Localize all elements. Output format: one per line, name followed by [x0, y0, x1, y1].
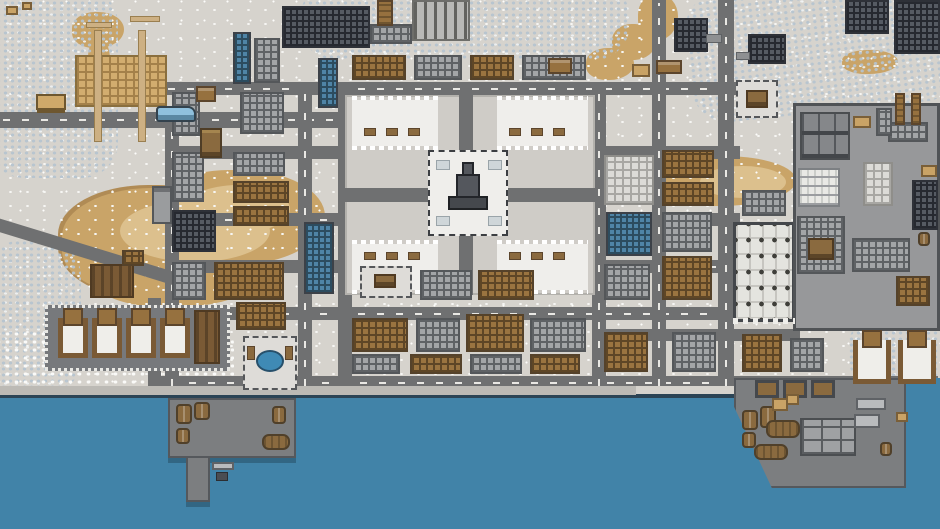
smokestack — [377, 0, 393, 26]
monument-statue[interactable] — [456, 174, 480, 198]
hotel[interactable] — [466, 314, 524, 352]
factory-chimney-a — [895, 93, 905, 125]
west-block-h[interactable] — [236, 302, 286, 330]
west-block-e[interactable] — [172, 210, 216, 252]
industrial-lower-hall[interactable] — [852, 238, 910, 272]
compound-storage[interactable] — [194, 310, 220, 364]
industrial-vat — [808, 238, 834, 260]
waterfront-east-a[interactable] — [604, 332, 648, 372]
south-row-c[interactable] — [530, 318, 586, 352]
vent-rows[interactable] — [798, 168, 840, 207]
west-block-b[interactable] — [240, 92, 284, 134]
warehouse-link-b — [736, 52, 750, 60]
harbor-cart-b — [854, 414, 880, 428]
monument-pedestal — [448, 196, 488, 210]
crate-north-a — [632, 64, 650, 77]
west-block-c[interactable] — [172, 152, 204, 202]
plaza-bench-nw-1 — [364, 128, 376, 136]
city-map — [0, 0, 940, 529]
waterfront-row-c[interactable] — [470, 354, 522, 374]
debris-b — [22, 2, 32, 10]
road-dash-line — [598, 85, 600, 386]
corner-tower-a[interactable] — [845, 0, 889, 34]
industrial-barrel — [918, 232, 930, 246]
harbor-barrel-big-a — [766, 420, 800, 438]
market-stall-4[interactable] — [160, 318, 190, 358]
plaza-bench-sw-1 — [364, 252, 376, 260]
plaza-bench-sw-2 — [386, 252, 398, 260]
office-annex[interactable] — [254, 38, 280, 83]
plaza-bench-ne-2 — [531, 128, 543, 136]
warehouse-north-a[interactable] — [674, 18, 708, 52]
west-block-g[interactable] — [214, 262, 284, 300]
shelter-north-b — [656, 60, 682, 74]
south-stall-a[interactable] — [853, 340, 891, 384]
plaza-bench-se-1 — [509, 252, 521, 260]
warehouse-north-b[interactable] — [748, 34, 786, 64]
limo[interactable] — [156, 106, 196, 122]
plaza-bench-se-3 — [553, 252, 565, 260]
plaza-road-east — [505, 188, 595, 202]
crane-arm-b — [130, 16, 160, 22]
storage-units[interactable] — [800, 112, 850, 160]
west-block-f[interactable] — [172, 262, 206, 300]
south-row-d[interactable] — [420, 270, 472, 300]
harbor-barrel-lone — [880, 442, 892, 456]
scaffold-pole-a — [94, 30, 102, 142]
industrial-east-tower[interactable] — [912, 180, 938, 230]
warehouse-link-a — [706, 34, 722, 43]
blue-tower-west[interactable] — [233, 32, 251, 84]
industrial-crates-a — [853, 116, 871, 128]
mansion[interactable] — [604, 155, 654, 205]
machine-monument — [746, 90, 768, 108]
column-hall[interactable] — [412, 0, 470, 41]
south-row-a[interactable] — [352, 318, 408, 352]
glass-tower[interactable] — [606, 212, 652, 256]
waterfront-east-d[interactable] — [790, 338, 824, 372]
industrial-crates-b — [921, 165, 937, 177]
plaza-courtyard-ne[interactable] — [497, 100, 588, 146]
cargo-box-c[interactable] — [811, 380, 835, 398]
dock-barrel-d — [272, 406, 286, 424]
pier-left[interactable] — [186, 456, 210, 502]
market-stall-3[interactable] — [126, 318, 156, 358]
barracks-row-b[interactable] — [233, 206, 289, 226]
park-bench-b — [285, 346, 293, 360]
plaza-bench-nw-2 — [386, 128, 398, 136]
plaza-bench-ne-1 — [509, 128, 521, 136]
water-tower[interactable] — [152, 186, 172, 224]
harbor-cart-a — [856, 398, 886, 410]
cemetery-wall — [733, 318, 795, 324]
plaza-bench-sw-3 — [408, 252, 420, 260]
hut[interactable] — [122, 250, 144, 266]
dock-barrel-big — [262, 434, 290, 450]
shops-row-c[interactable] — [470, 55, 514, 80]
boiler-pavilion[interactable] — [370, 24, 412, 44]
construction-building[interactable] — [75, 55, 167, 107]
shops-row-b[interactable] — [414, 55, 462, 80]
industrial-lower-annex[interactable] — [896, 276, 930, 306]
factory-chimney-b — [911, 93, 921, 125]
dock-bench — [212, 462, 234, 470]
industrial-tower[interactable] — [876, 108, 892, 136]
waterfront-row-a[interactable] — [352, 354, 400, 374]
plaza-road-west — [345, 188, 431, 202]
monument-seat-a — [436, 160, 450, 170]
waterfront-row-d[interactable] — [530, 354, 580, 374]
road-v-6 — [718, 0, 734, 389]
waterfront-east-b[interactable] — [672, 332, 716, 372]
billboard — [36, 94, 66, 110]
plaza-bench-ne-3 — [553, 128, 565, 136]
blue-twins[interactable] — [304, 222, 334, 294]
harbor-crate-b — [786, 394, 799, 405]
northeast-block[interactable] — [742, 190, 786, 216]
barn[interactable] — [90, 264, 134, 298]
pond[interactable] — [256, 350, 284, 372]
harbor-barrel-big-b — [754, 444, 788, 460]
scaffold-pole-b — [138, 30, 146, 142]
plaza-road-north — [459, 95, 473, 153]
shops-row-a[interactable] — [352, 55, 406, 80]
dock-barrel-a — [176, 404, 192, 424]
plaza-bench-nw-3 — [408, 128, 420, 136]
market-stall-1[interactable] — [58, 318, 88, 358]
plaza-courtyard-nw[interactable] — [352, 100, 438, 146]
blue-tower-mid[interactable] — [318, 58, 338, 108]
monument-seat-b — [488, 160, 502, 170]
south-row-b[interactable] — [416, 318, 460, 352]
harbor-crate-c — [896, 412, 908, 422]
monument-seat-d — [488, 216, 502, 226]
factory-silo[interactable] — [863, 162, 893, 206]
plaque-machine — [374, 274, 396, 288]
grand-hall[interactable] — [282, 6, 370, 48]
brick-row-b[interactable] — [662, 182, 714, 206]
waterfront-row-b[interactable] — [410, 354, 462, 374]
shelter-north — [548, 58, 572, 74]
waterfront-east-c[interactable] — [742, 334, 782, 372]
barracks-row-a[interactable] — [233, 181, 289, 203]
monument-seat-c — [436, 216, 450, 226]
corner-tower-b[interactable] — [894, 0, 940, 54]
market-stall-2[interactable] — [92, 318, 122, 358]
plaza-bench-se-2 — [531, 252, 543, 260]
crane-arm-a — [86, 22, 112, 28]
delivery-truck[interactable] — [200, 128, 222, 158]
south-row-e[interactable] — [478, 270, 534, 300]
road-dash-line — [725, 3, 727, 386]
east-block-b[interactable] — [662, 212, 712, 252]
harbor-barrel-a — [742, 410, 758, 430]
dock-crate-dark — [216, 472, 228, 481]
harbor-barrel-c — [742, 432, 756, 448]
east-block-a[interactable] — [604, 264, 650, 300]
machine-hall[interactable] — [888, 122, 928, 142]
park-bench-a — [247, 346, 255, 360]
debris-a — [6, 6, 18, 15]
brick-row-a[interactable] — [662, 150, 714, 178]
west-block-d[interactable] — [233, 152, 285, 176]
bus-shelter — [196, 86, 216, 102]
south-stall-b[interactable] — [898, 340, 936, 384]
monument-head — [462, 162, 474, 176]
cargo-box-a[interactable] — [755, 380, 779, 398]
dock-barrel-b — [194, 402, 210, 420]
east-block-c[interactable] — [662, 256, 712, 300]
container-stack[interactable] — [800, 418, 856, 456]
dock-barrel-c — [176, 428, 190, 444]
cemetery[interactable] — [733, 222, 795, 322]
